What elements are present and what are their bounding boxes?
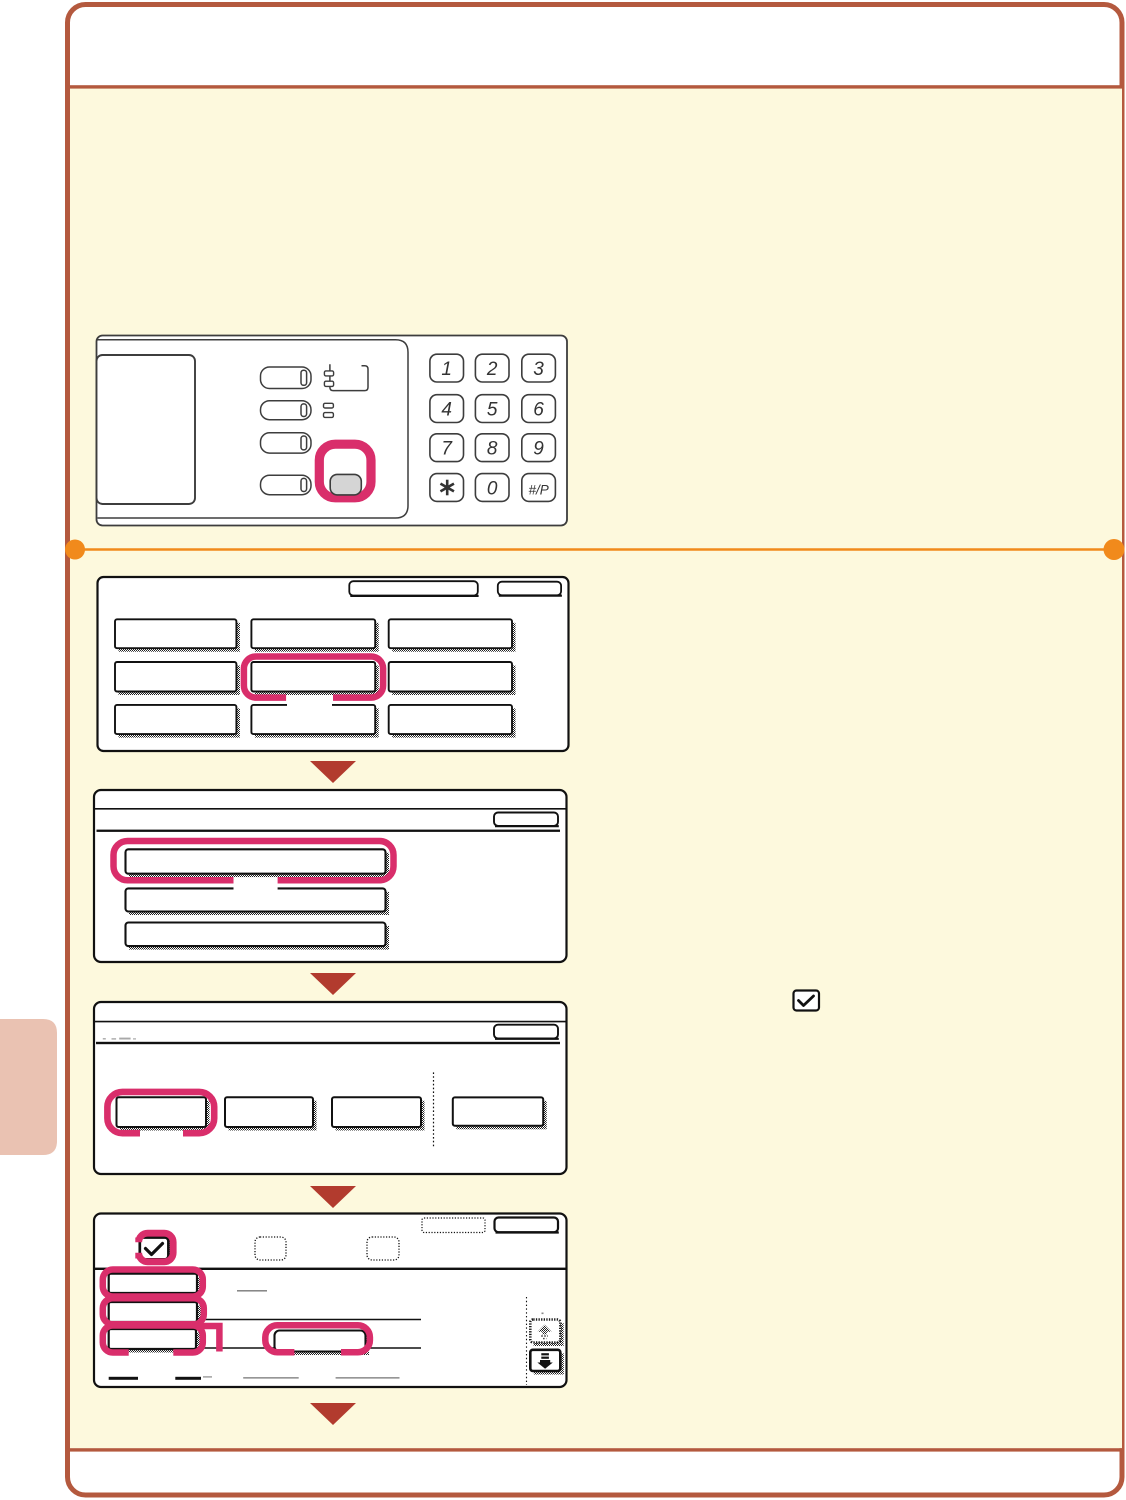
svg-text:7: 7 (441, 439, 453, 460)
svg-text:8: 8 (487, 439, 498, 460)
svg-text:0: 0 (487, 479, 498, 500)
svg-text:1: 1 (441, 359, 452, 380)
svg-text:6: 6 (533, 400, 544, 421)
svg-text:2: 2 (486, 359, 498, 380)
svg-text:3: 3 (533, 359, 544, 380)
svg-text:#/P: #/P (528, 483, 548, 498)
svg-text:4: 4 (441, 400, 452, 421)
svg-text:5: 5 (487, 400, 498, 421)
svg-text:9: 9 (533, 439, 544, 460)
